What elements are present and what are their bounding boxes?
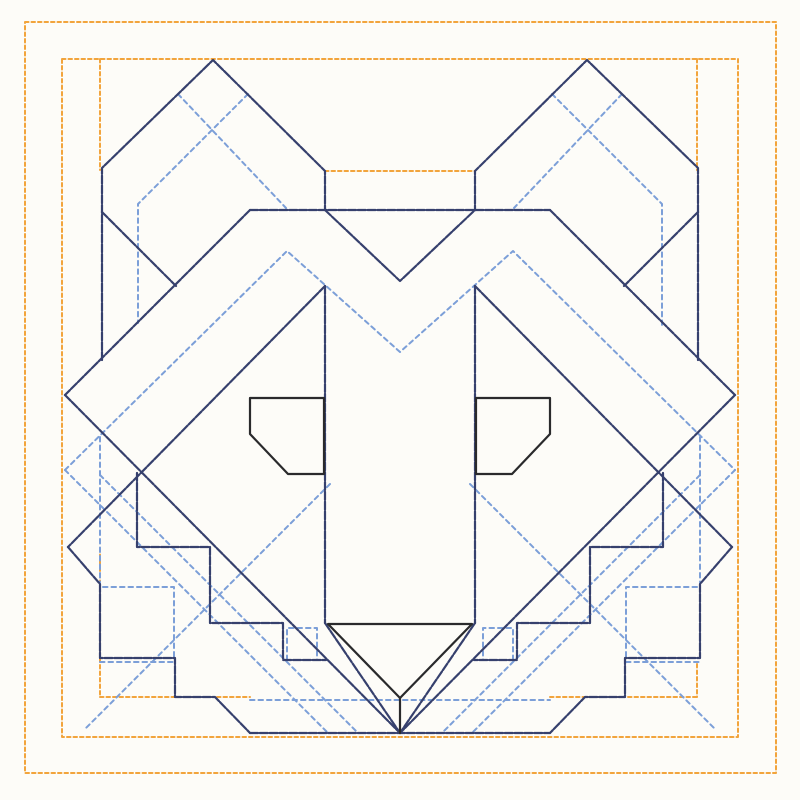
wolf-face-quilt-pattern xyxy=(0,0,800,800)
fabric-background xyxy=(0,0,800,800)
embroidery-pattern-page xyxy=(0,0,800,800)
